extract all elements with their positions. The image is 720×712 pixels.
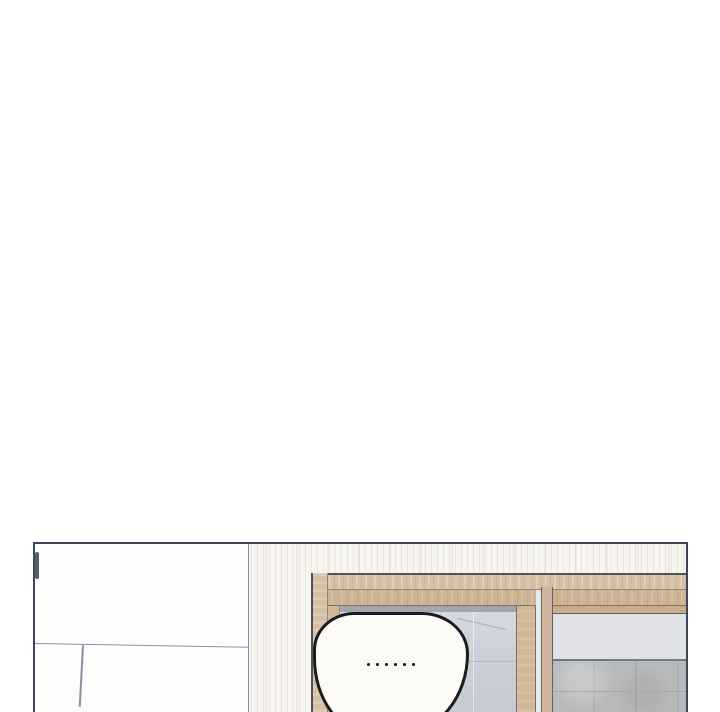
- door-right-stile: [516, 606, 536, 712]
- cabinet-shelf-line: [35, 643, 248, 648]
- sliding-panel-frosted-glass: [553, 614, 686, 659]
- glass-reflection-vertical: [473, 612, 474, 712]
- kitchen-cabinets: [35, 544, 249, 712]
- cabinet-handle: [35, 552, 39, 579]
- ellipsis-dot: [367, 663, 370, 666]
- webtoon-page: { "page": { "background": "#ffffff" }, "…: [0, 0, 720, 700]
- ellipsis-dot: [385, 663, 388, 666]
- sliding-panel-stile: [541, 587, 553, 712]
- comic-panel: ......: [33, 542, 688, 712]
- sliding-panel: [553, 606, 686, 712]
- sliding-panel-top-rail: [553, 606, 686, 614]
- ellipsis-dot: [394, 663, 397, 666]
- door-frame-head-lower: [311, 590, 686, 606]
- speech-bubble: ......: [313, 612, 469, 712]
- ellipsis-dot: [376, 663, 379, 666]
- bubble-ellipsis: [316, 663, 466, 666]
- sliding-panel-textured-glass: [553, 661, 686, 712]
- cabinet-divider-line: [79, 645, 84, 707]
- tile-seam-line: [553, 691, 686, 692]
- glass-reflection-diagonal: [458, 618, 507, 630]
- door-frame-head-upper: [311, 573, 686, 590]
- ellipsis-dot: [412, 663, 415, 666]
- ellipsis-dot: [403, 663, 406, 666]
